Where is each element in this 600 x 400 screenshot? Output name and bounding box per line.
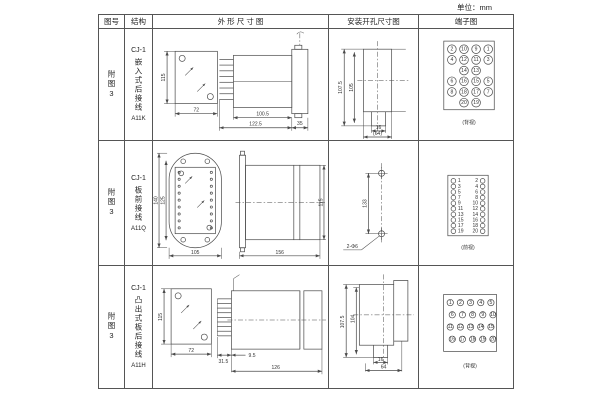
svg-text:3: 3 [487, 57, 490, 63]
svg-text:8: 8 [471, 312, 474, 318]
figure-no-text: 附图3 [106, 188, 117, 218]
header-outline-dims: 外 形 尺 寸 图 [153, 15, 329, 29]
header-mounting-dims: 安装开孔尺寸图 [329, 15, 419, 29]
svg-text:20: 20 [472, 229, 478, 235]
svg-text:7: 7 [487, 89, 490, 95]
svg-text:3: 3 [469, 300, 472, 306]
svg-text:4: 4 [450, 57, 453, 63]
dim-cutout-outer-height: 107.5 [338, 81, 344, 94]
svg-text:10: 10 [461, 46, 467, 52]
row2-outline-cell: 140 125 105 156 [153, 141, 329, 266]
dim-notch-width: 16 [378, 357, 384, 363]
structure-text: 凸出式板后接线 [133, 296, 144, 359]
dim-front-width: 72 [188, 348, 194, 354]
dim-front-height: 115 [161, 73, 167, 81]
svg-text:19: 19 [458, 229, 464, 235]
dim-hole-spacing: 133 [362, 199, 368, 208]
svg-text:17: 17 [473, 89, 479, 95]
svg-text:15: 15 [488, 324, 494, 330]
svg-text:11: 11 [448, 324, 453, 330]
svg-text:7: 7 [461, 312, 464, 318]
header-terminal-diagram: 端子图 [419, 15, 513, 29]
view-label: (前视) [461, 244, 475, 251]
row1-mounting-cell: 107.5 105 16 (64) [329, 29, 419, 141]
row1-outline-cell: 115 72 [153, 29, 329, 141]
dim-cutout-outer-height: 107.5 [340, 315, 346, 328]
svg-text:15: 15 [473, 79, 479, 85]
row2-mounting-cell: 133 2-Φ6 [329, 141, 419, 266]
svg-text:14: 14 [478, 324, 484, 330]
svg-text:9: 9 [481, 312, 484, 318]
terminal-diagram-r2: 1357911131517192468101214161820 (前视) [419, 141, 513, 265]
outline-diagram-r2: 140 125 105 156 [153, 141, 328, 265]
dim-pin-length: 31.5 [219, 359, 229, 365]
dim-inner-height: 125 [161, 196, 167, 205]
terminal-diagram-r1: 2109141211314136161558181772019 (背视) [419, 29, 513, 140]
dim-flange-length: 35 [297, 121, 303, 127]
svg-text:14: 14 [461, 68, 467, 74]
svg-text:12: 12 [458, 324, 464, 330]
row1-structure: CJ-1 嵌入式后接线 A11K [125, 29, 153, 141]
dim-span: 64 [381, 364, 387, 370]
svg-text:11: 11 [473, 57, 478, 63]
row1-figure-no: 附图3 [99, 29, 125, 141]
svg-text:10: 10 [490, 312, 496, 318]
unit-label: 单位：mm [400, 2, 492, 13]
svg-text:6: 6 [451, 312, 454, 318]
front-view: 140 125 105 [154, 153, 222, 259]
svg-text:5: 5 [487, 79, 490, 85]
terminal-grid: 1357911131517192468101214161820 [451, 178, 485, 234]
mounting-diagram-r3: 107.5 104 16 64 [329, 266, 418, 388]
svg-text:9: 9 [475, 46, 478, 52]
terminal-grid: 2109141211314136161558181772019 [448, 45, 493, 107]
side-view: 156 115 [235, 151, 326, 259]
svg-text:18: 18 [461, 89, 467, 95]
dim-front-height: 115 [158, 313, 164, 321]
row1-terminal-cell: 2109141211314136161558181772019 (背视) [419, 29, 513, 141]
figure-no-text: 附图3 [106, 312, 117, 342]
figure-no-text: 附图3 [106, 70, 117, 100]
view-label: (背视) [462, 119, 476, 126]
row2-figure-no: 附图3 [99, 141, 125, 266]
terminal-grid: 1234567891011121314151617181920 [447, 299, 496, 342]
front-view: 115 72 [161, 51, 217, 116]
dim-depth: 156 [276, 250, 285, 256]
dim-cutout-inner-height: 104 [350, 315, 356, 324]
front-view: 115 72 [158, 289, 211, 357]
row3-terminal-cell: 1234567891011121314151617181920 (背视) [419, 266, 513, 388]
svg-text:1: 1 [449, 300, 452, 306]
side-view: 100.5 122.5 35 [219, 32, 308, 131]
svg-text:1: 1 [487, 46, 490, 52]
header-structure: 结构 [125, 15, 153, 29]
view-label: (背视) [463, 363, 477, 370]
structure-text: 嵌入式后接线 [133, 58, 144, 112]
outline-diagram-r3: 115 72 [153, 266, 328, 388]
dimension-table: 图号 结构 外 形 尺 寸 图 安装开孔尺寸图 端子图 附图3 CJ-1 嵌入式… [98, 14, 514, 389]
dim-front-width: 105 [191, 250, 200, 256]
terminal-diagram-r3: 1234567891011121314151617181920 (背视) [419, 266, 513, 388]
dim-total-length: 122.5 [249, 122, 262, 128]
dim-depth: 126 [272, 365, 281, 371]
dim-span: (64) [373, 131, 382, 137]
svg-text:19: 19 [473, 100, 479, 106]
svg-text:2: 2 [459, 300, 462, 306]
row2-structure: CJ-1 板前接线 A11Q [125, 141, 153, 266]
dim-outer-height: 140 [154, 196, 160, 205]
svg-text:19: 19 [480, 336, 486, 342]
mounting-diagram-r2: 133 2-Φ6 [329, 141, 418, 265]
svg-text:17: 17 [460, 336, 466, 342]
row3-figure-no: 附图3 [99, 266, 125, 388]
series-text: CJ-1 [131, 285, 146, 292]
dim-cutout-inner-height: 105 [349, 83, 355, 92]
svg-text:12: 12 [461, 57, 467, 63]
svg-text:8: 8 [450, 89, 453, 95]
series-text: CJ-1 [131, 47, 146, 54]
svg-text:2: 2 [450, 46, 453, 52]
svg-text:13: 13 [468, 324, 474, 330]
svg-text:16: 16 [461, 79, 467, 85]
mounting-diagram-r1: 107.5 105 16 (64) [329, 29, 418, 140]
svg-text:16: 16 [449, 336, 455, 342]
row3-outline-cell: 115 72 [153, 266, 329, 388]
model-text: A11Q [131, 226, 146, 232]
svg-text:20: 20 [490, 336, 496, 342]
svg-text:18: 18 [470, 336, 476, 342]
dim-front-width: 72 [193, 108, 199, 114]
svg-text:6: 6 [450, 79, 453, 85]
hole-callout: 2-Φ6 [347, 244, 358, 250]
dim-side-height: 115 [318, 198, 324, 206]
side-view: 9.5 31.5 126 [217, 275, 326, 375]
model-text: A11H [131, 363, 146, 369]
header-figure-no: 图号 [99, 15, 125, 29]
svg-text:20: 20 [461, 100, 467, 106]
row3-mounting-cell: 107.5 104 16 64 [329, 266, 419, 388]
outline-diagram-r1: 115 72 [153, 29, 328, 140]
dim-offset: 9.5 [249, 353, 256, 359]
structure-text: 板前接线 [133, 186, 144, 222]
svg-text:4: 4 [479, 300, 482, 306]
svg-text:5: 5 [489, 300, 492, 306]
row2-terminal-cell: 1357911131517192468101214161820 (前视) [419, 141, 513, 266]
svg-text:13: 13 [473, 68, 479, 74]
row3-structure: CJ-1 凸出式板后接线 A11H [125, 266, 153, 388]
model-text: A11K [131, 116, 145, 122]
series-text: CJ-1 [131, 175, 146, 182]
dim-body-length: 100.5 [256, 112, 269, 118]
